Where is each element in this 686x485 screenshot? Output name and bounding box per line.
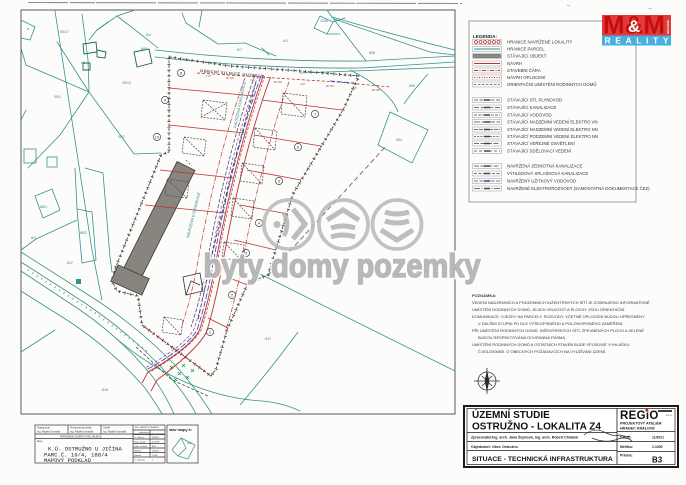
svg-text:05/17: 05/17 (60, 30, 69, 34)
svg-text:LEGENDA:: LEGENDA: (473, 34, 497, 39)
svg-text:647: 647 (67, 261, 73, 265)
svg-text:UMÍSTĚNÍ RODINNÝCH DOMŮ, JEJIC: UMÍSTĚNÍ RODINNÝCH DOMŮ, JEJICH VELIKOST… (472, 307, 625, 312)
svg-text:Ing. Radek Konvalid: Ing. Radek Konvalid (70, 430, 94, 434)
svg-text:a: a (27, 27, 29, 31)
svg-text:Formát: Formát (134, 454, 141, 457)
svg-text:05/13: 05/13 (122, 81, 131, 85)
svg-text:281: 281 (187, 441, 192, 445)
svg-text:-648: -648 (101, 388, 108, 392)
svg-text:S-JTSK: S-JTSK (152, 441, 160, 443)
svg-text:694: 694 (396, 138, 402, 142)
svg-text:Ing. Radek Konvalid: Ing. Radek Konvalid (103, 430, 127, 434)
svg-text:MAPOVÝ PODKLAD: MAPOVÝ PODKLAD (44, 457, 92, 464)
svg-text:V 25: V 25 (206, 76, 211, 78)
svg-text:PŘI UMÍSTĚNÍ RODINNÝCH DOMŮ, I: PŘI UMÍSTĚNÍ RODINNÝCH DOMŮ, INŽENÝRSKÝC… (472, 328, 644, 333)
svg-text:STÁVAJÍCÍ PODZEMNÍ VEDENÍ ELEK: STÁVAJÍCÍ PODZEMNÍ VEDENÍ ELEKTRO NN (507, 134, 598, 139)
svg-text:STÁVAJÍCÍ NADZEMNÍ VEDENÍ ELEK: STÁVAJÍCÍ NADZEMNÍ VEDENÍ ELEKTRO NN (507, 127, 598, 132)
svg-text:ÚZEMNÍ STUDIE: ÚZEMNÍ STUDIE (472, 408, 550, 421)
svg-text:Měřítko: Měřítko (134, 449, 142, 452)
svg-text:STAVEBNÍ ČÁRA: STAVEBNÍ ČÁRA (507, 68, 541, 73)
svg-text:6/1: 6/1 (283, 39, 288, 43)
svg-text:STÁVAJÍCÍ VEŘEJNÉ OSVĚTLENÍ: STÁVAJÍCÍ VEŘEJNÉ OSVĚTLENÍ (507, 141, 576, 146)
svg-text:DN 300: DN 300 (372, 90, 381, 92)
svg-text:VEDENÍ NADZEMNÍCH A PODZEMNÍCH: VEDENÍ NADZEMNÍCH A PODZEMNÍCH INŽENÝRSK… (472, 300, 650, 305)
svg-text:68/1: 68/1 (40, 205, 47, 209)
svg-text:Vypracoval: Vypracoval (37, 426, 50, 430)
svg-text:NAVRŽENÁ JEDNOTNÁ KANALIZACE: NAVRŽENÁ JEDNOTNÁ KANALIZACE (507, 163, 583, 168)
svg-text:8/1: 8/1 (31, 236, 36, 240)
svg-text:05/1: 05/1 (54, 95, 61, 99)
svg-text:PARDUBICE JOSEFŮV DŮL VALDIC: PARDUBICE JOSEFŮV DŮL VALDICE (60, 436, 102, 439)
svg-text:HOLDING: HOLDING (666, 20, 670, 34)
svg-text:KOMUNIKACE, VJEZDY NA PARCELY,: KOMUNIKACE, VJEZDY NA PARCELY, ROZVODY, … (472, 314, 645, 319)
svg-text:&: & (628, 17, 640, 36)
svg-text:Ověřil: Ověřil (103, 426, 110, 430)
svg-text:1:500: 1:500 (152, 455, 158, 457)
svg-text:Příloha:: Příloha: (620, 454, 633, 458)
svg-text:Akce: Akce (37, 440, 43, 443)
svg-text:Výšk. souřad.: Výšk. souřad. (134, 446, 148, 448)
svg-text:B3: B3 (652, 456, 663, 465)
svg-text:VÝHLEDOVÁ SPLAŠKOVÁ KANALIZACE: VÝHLEDOVÁ SPLAŠKOVÁ KANALIZACE (507, 171, 588, 176)
svg-text:898: 898 (369, 51, 375, 55)
svg-text:HRANICE NAVRŽENÉ LOKALITY: HRANICE NAVRŽENÉ LOKALITY (507, 39, 572, 44)
svg-text:BUDOU RESPEKTOVÁNA OCHRANNÁ PÁ: BUDOU RESPEKTOVÁNA OCHRANNÁ PÁSMA. (478, 335, 566, 340)
svg-text:STÁVAJÍCÍ NADZEMNÍ VEDENÍ ELEK: STÁVAJÍCÍ NADZEMNÍ VEDENÍ ELEKTRO VN (507, 119, 598, 124)
svg-text:895: 895 (409, 84, 415, 88)
svg-text:byty domy pozemky: byty domy pozemky (204, 247, 482, 284)
svg-text:05: 05 (81, 61, 85, 65)
svg-text:STÁVAJÍCÍ KANALIZACE: STÁVAJÍCÍ KANALIZACE (507, 105, 556, 110)
svg-text:1038: 1038 (320, 19, 328, 23)
svg-text:Zpracovatel:: Zpracovatel: (471, 436, 492, 440)
svg-text:Datum:: Datum: (620, 436, 632, 440)
svg-text:s.r.o.: s.r.o. (666, 413, 672, 417)
svg-text:Technická kontrola: Technická kontrola (70, 426, 92, 430)
svg-text:11/2021: 11/2021 (652, 436, 664, 440)
svg-text:Ing. arch. Jana Šejvlová, Ing.: Ing. arch. Jana Šejvlová, Ing. arch. Rob… (492, 435, 578, 440)
svg-text:STÁVAJÍCÍ STL PLYNOVOD: STÁVAJÍCÍ STL PLYNOVOD (507, 97, 562, 102)
svg-text:PROJEKTOVÝ ATELIÉR: PROJEKTOVÝ ATELIÉR (620, 421, 662, 426)
svg-text:6/7: 6/7 (237, 48, 242, 52)
svg-text:SITUACE - TECHNICKÁ INFRASTRUK: SITUACE - TECHNICKÁ INFRASTRUKTURA (472, 454, 613, 463)
svg-text:DN 300: DN 300 (326, 86, 335, 88)
svg-text:stav mapy k:: stav mapy k: (169, 428, 192, 432)
svg-text:REGiO: REGiO (620, 410, 659, 422)
svg-text:8/4: 8/4 (146, 33, 151, 37)
svg-text:689: 689 (141, 47, 147, 51)
svg-text:V 25: V 25 (352, 88, 357, 90)
svg-text:Č. zakázky: Č. zakázky (134, 458, 146, 461)
svg-text:S. výkresu: S. výkresu (134, 436, 145, 439)
svg-text:05/263: 05/263 (152, 450, 159, 452)
svg-text:05/263: 05/263 (152, 437, 159, 439)
svg-text:ORIENTAČNÍ UMÍSTĚNÍ RODINNÝCH: ORIENTAČNÍ UMÍSTĚNÍ RODINNÝCH DOMŮ (507, 82, 596, 87)
svg-text:POZNÁMKA:: POZNÁMKA: (472, 293, 496, 298)
svg-text:STÁVAJÍCÍ SDĚLOVACÍ VEDENÍ: STÁVAJÍCÍ SDĚLOVACÍ VEDENÍ (507, 148, 572, 153)
svg-text:OSTRUŽNO - LOKALITA Z4: OSTRUŽNO - LOKALITA Z4 (472, 420, 601, 433)
svg-text:Měřítko:: Měřítko: (620, 445, 633, 449)
svg-text:10: 10 (155, 135, 160, 140)
svg-text:NÁVRH OPLOCENÍ: NÁVRH OPLOCENÍ (507, 75, 546, 80)
svg-text:DN 300: DN 300 (226, 78, 235, 80)
svg-text:Objednatel:: Objednatel: (471, 445, 491, 449)
svg-text:Č.501/2006SB. O OBECNÝCH POŽAD: Č.501/2006SB. O OBECNÝCH POŽADAVCÍCH NA … (478, 349, 606, 354)
svg-text:Obec Ostružno: Obec Ostružno (492, 445, 519, 449)
svg-text:NÁVRH: NÁVRH (507, 61, 522, 66)
svg-text:-947: -947 (264, 337, 271, 341)
svg-text:HRADEC KRÁLOVÉ: HRADEC KRÁLOVÉ (620, 426, 655, 431)
svg-text:V DALŠÍM STUPNI PD DLE VÝŠKOPI: V DALŠÍM STUPNI PD DLE VÝŠKOPISNÉHO A PO… (478, 321, 623, 326)
svg-text:BPV: BPV (152, 446, 157, 448)
svg-text:V 25: V 25 (300, 84, 305, 86)
svg-text:autorizace: autorizace (139, 431, 150, 434)
svg-text:STÁVAJÍCÍ OBJEKT: STÁVAJÍCÍ OBJEKT (507, 53, 547, 58)
svg-text:1:1000: 1:1000 (652, 445, 663, 449)
svg-text:68/2: 68/2 (80, 231, 87, 235)
svg-text:DN 300: DN 300 (274, 82, 283, 84)
svg-text:05/2: 05/2 (118, 135, 125, 139)
svg-text:Kraj souřad.: Kraj souřad. (134, 440, 146, 443)
svg-text:HRANICE PARCEL: HRANICE PARCEL (507, 46, 545, 51)
svg-text:NAVRŽENÉ ELEKTROROZVODY (SAMOS: NAVRŽENÉ ELEKTROROZVODY (SAMOSTATNÁ DOKU… (507, 186, 650, 191)
svg-text:ING. RADEK KONVALID: ING. RADEK KONVALID (135, 426, 160, 429)
svg-text:UMÍSTĚNÍ RODINNÝCH DOMŮ A OSTA: UMÍSTĚNÍ RODINNÝCH DOMŮ A OSTATNÍCH STAV… (472, 342, 630, 347)
svg-text:NAVRŽENÝ UŽITKOVÝ VODOVOD: NAVRŽENÝ UŽITKOVÝ VODOVOD (507, 178, 576, 183)
svg-text:Ing. Radek Konvalid: Ing. Radek Konvalid (37, 430, 61, 434)
svg-text:STÁVAJÍCÍ VODOVOD: STÁVAJÍCÍ VODOVOD (507, 112, 552, 117)
